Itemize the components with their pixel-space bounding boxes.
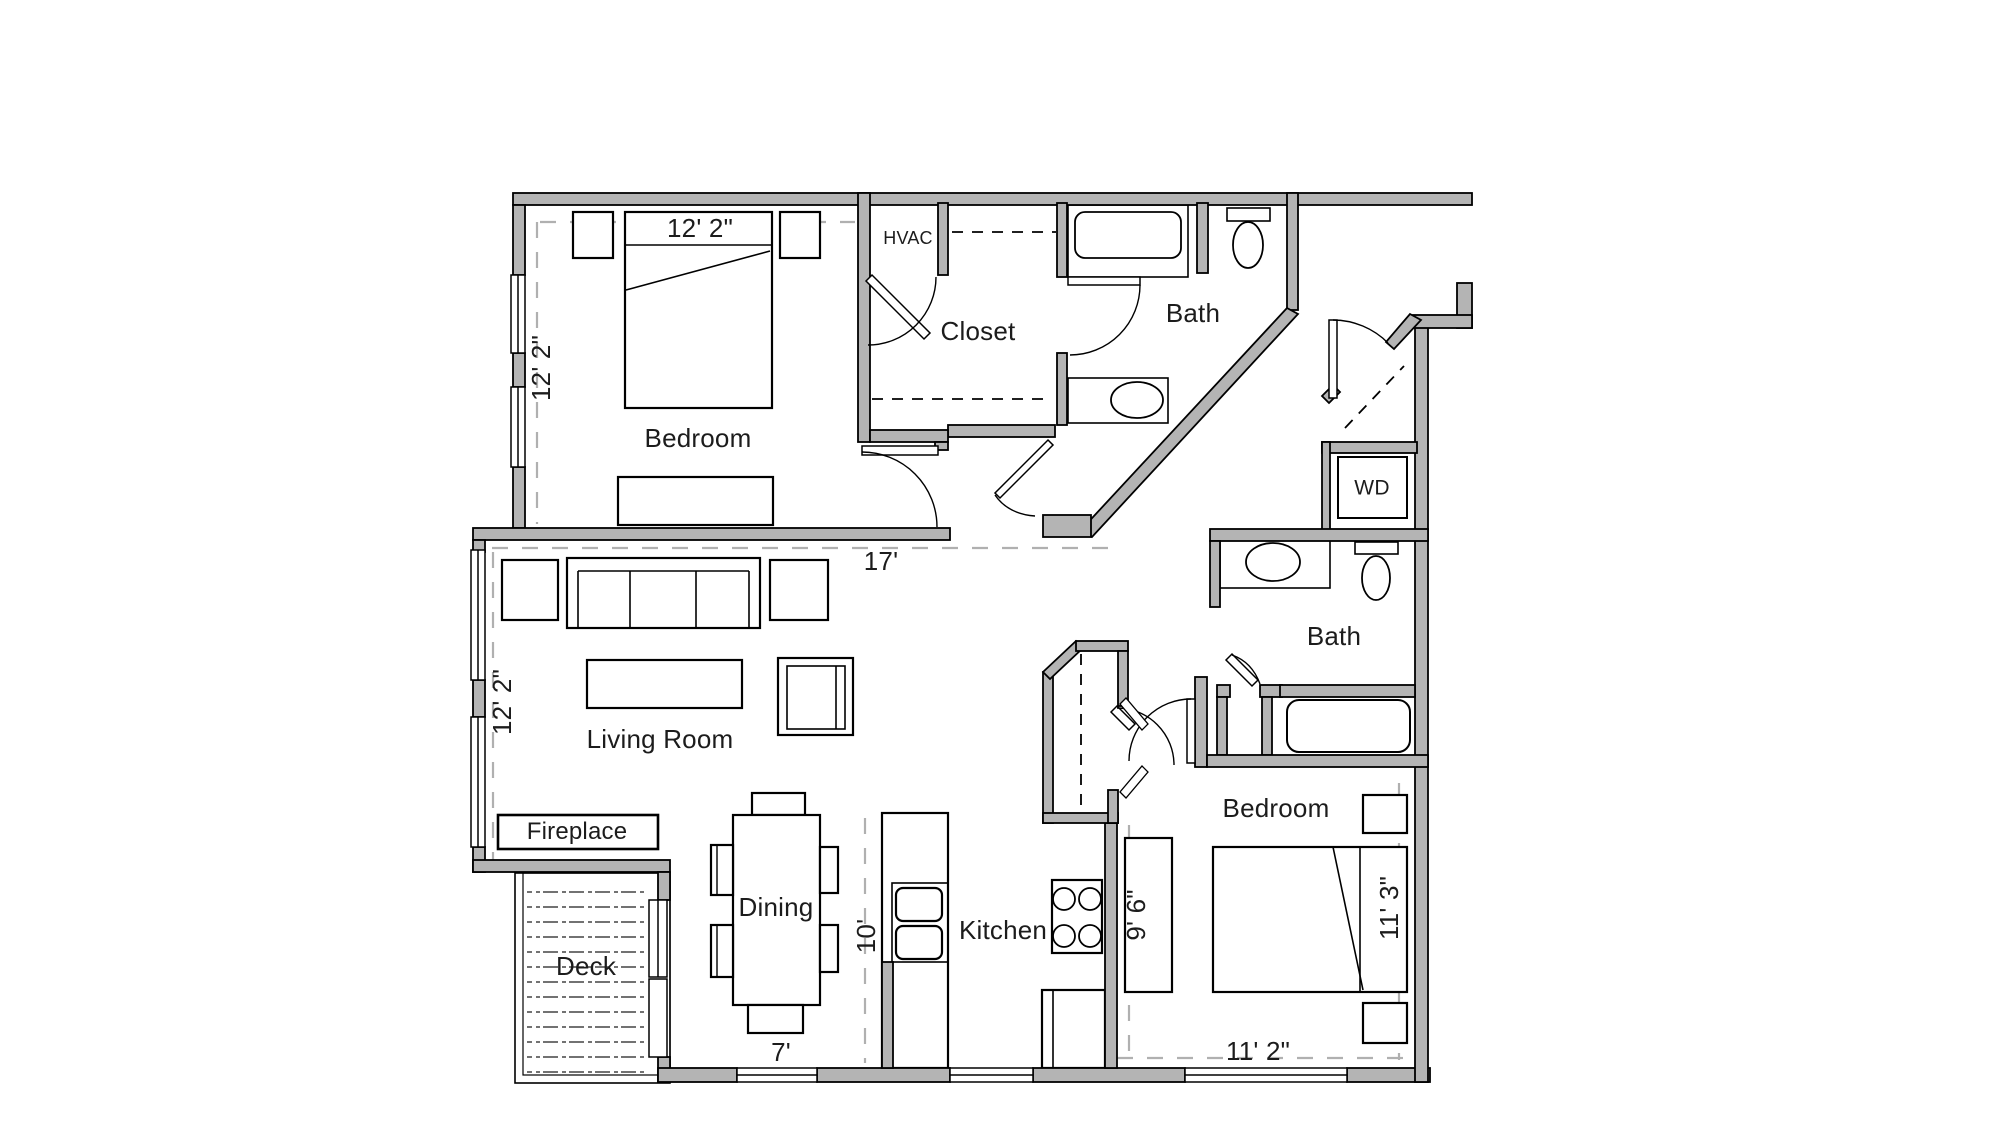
dresser xyxy=(618,477,773,525)
toilet xyxy=(1227,208,1270,221)
sink xyxy=(1111,382,1163,418)
nightstand xyxy=(1363,1003,1407,1043)
dim-kitchen-depth: 9' 6" xyxy=(1123,889,1149,940)
dim-dining-width: 7' xyxy=(771,1039,791,1065)
dim-living-width: 17' xyxy=(864,548,898,574)
door-hall xyxy=(995,440,1053,498)
room-label-bath-top: Bath xyxy=(1166,300,1220,326)
bathtub xyxy=(1287,700,1410,752)
door-swing xyxy=(1129,699,1191,761)
end-table xyxy=(770,560,828,620)
room-label-hvac: HVAC xyxy=(883,229,932,247)
door-bath-top xyxy=(1068,277,1140,285)
sink-basin xyxy=(896,926,942,959)
dim-bedroom2-width: 11' 2" xyxy=(1226,1038,1290,1064)
dining-chair xyxy=(711,845,733,895)
nightstand xyxy=(573,212,613,258)
room-label-fireplace: Fireplace xyxy=(527,820,628,844)
sink-basin xyxy=(896,888,942,921)
wall-top xyxy=(513,193,1472,205)
room-label-living: Living Room xyxy=(587,726,734,752)
wall-bedroom1-right xyxy=(858,193,870,442)
door-pantry-bifold xyxy=(1120,766,1148,798)
wall-bottom xyxy=(658,1068,737,1082)
sink xyxy=(1246,543,1300,581)
door-hvac xyxy=(866,275,930,339)
door-bath-right xyxy=(1187,699,1195,763)
door-entry xyxy=(1329,320,1337,398)
room-label-closet: Closet xyxy=(941,318,1016,344)
room-label-wd: WD xyxy=(1354,478,1389,499)
refrigerator xyxy=(1042,990,1105,1068)
door-swing xyxy=(1333,320,1388,343)
dining-chair xyxy=(752,793,805,815)
floor-plan-drawing xyxy=(0,0,2000,1126)
wall-closet-bottom xyxy=(948,425,1055,437)
wall-hvac xyxy=(938,203,948,275)
wall-bedroom1-bottom xyxy=(473,528,950,540)
room-label-bath-right: Bath xyxy=(1307,623,1361,649)
wall-pantry xyxy=(1043,672,1053,823)
wall-wd-top xyxy=(1322,442,1417,453)
door-swing xyxy=(995,495,1035,516)
dim-bedroom1-depth: 12' 2" xyxy=(528,335,554,401)
door-swing xyxy=(862,452,937,527)
dim-bedroom1-width: 12' 2" xyxy=(667,215,733,241)
dim-living-depth: 12' 2" xyxy=(489,669,515,735)
floor-plan: Bedroom Closet HVAC Bath WD Bath Living … xyxy=(0,0,2000,1126)
dim-bedroom2-depth: 11' 3" xyxy=(1376,876,1402,940)
door-swing xyxy=(1070,285,1140,355)
sliding-door xyxy=(649,979,667,1057)
wall-bath2-top xyxy=(1210,529,1428,541)
toilet xyxy=(1355,542,1398,554)
room-label-dining: Dining xyxy=(739,894,814,920)
dining-chair xyxy=(820,847,838,893)
room-label-deck: Deck xyxy=(556,953,616,979)
end-table xyxy=(502,560,558,620)
wall-bath2-bottom xyxy=(1207,755,1428,767)
dining-chair xyxy=(711,925,733,977)
dining-chair xyxy=(820,925,838,972)
wall-right xyxy=(1415,327,1428,1082)
door-bedroom1 xyxy=(862,446,938,455)
sofa xyxy=(567,558,760,628)
wall-kitchen xyxy=(1105,823,1117,1068)
room-label-bedroom2: Bedroom xyxy=(1223,795,1330,821)
nightstand xyxy=(780,212,820,258)
nightstand xyxy=(1363,795,1407,833)
dining-chair xyxy=(748,1005,803,1033)
coffee-table xyxy=(587,660,742,708)
armchair xyxy=(778,658,853,735)
room-label-bedroom1: Bedroom xyxy=(645,425,752,451)
wall-fireplace xyxy=(473,860,670,872)
wall-bath-right xyxy=(1287,193,1298,310)
dim-dining-depth: 10' xyxy=(853,919,879,953)
room-label-kitchen: Kitchen xyxy=(959,917,1047,943)
